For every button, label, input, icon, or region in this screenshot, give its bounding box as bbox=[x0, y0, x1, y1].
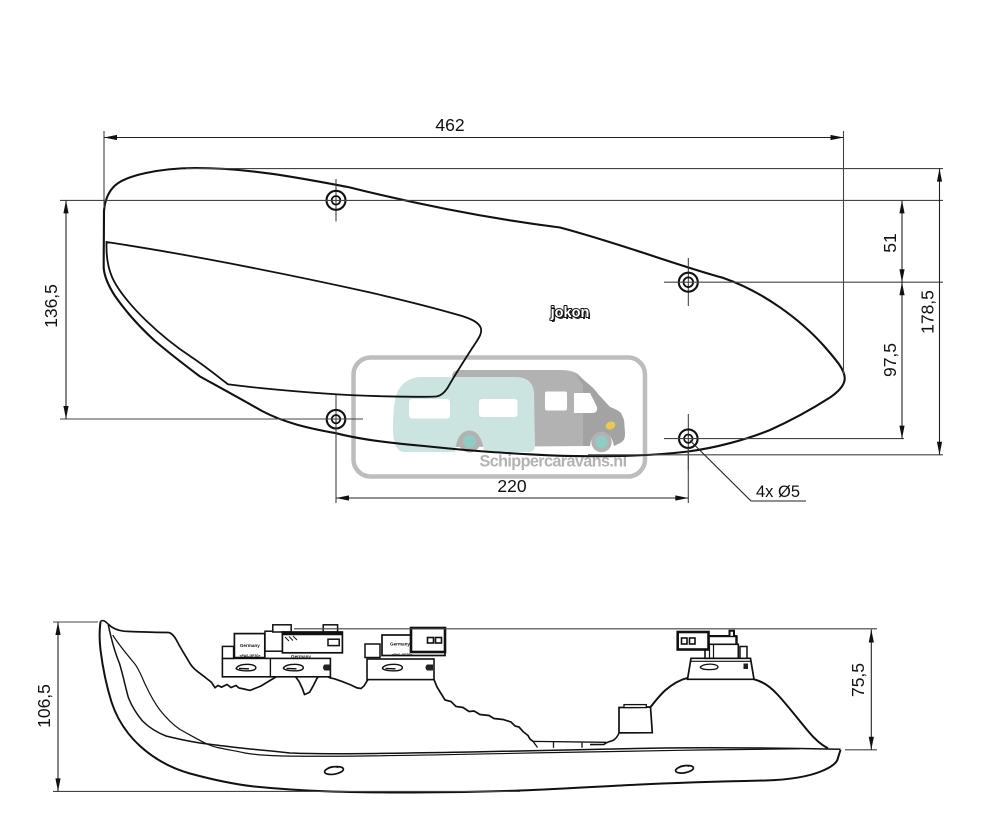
svg-text:Germany: Germany bbox=[291, 654, 311, 659]
svg-text:«PA6-GF30»: «PA6-GF30» bbox=[392, 653, 413, 657]
svg-text:«PA6-GF30»: «PA6-GF30» bbox=[240, 654, 261, 658]
svg-text:97,5: 97,5 bbox=[880, 343, 900, 377]
svg-text:462: 462 bbox=[435, 115, 464, 135]
svg-text:51: 51 bbox=[880, 233, 900, 252]
svg-text:178,5: 178,5 bbox=[918, 290, 938, 334]
svg-text:220: 220 bbox=[497, 476, 526, 496]
svg-text:jokon: jokon bbox=[550, 305, 590, 321]
svg-text:75,5: 75,5 bbox=[848, 663, 868, 697]
svg-text:136,5: 136,5 bbox=[41, 284, 61, 328]
svg-text:Germany: Germany bbox=[390, 641, 410, 646]
svg-text:Germany: Germany bbox=[240, 643, 260, 648]
svg-text:106,5: 106,5 bbox=[34, 684, 54, 728]
svg-text:4x Ø5: 4x Ø5 bbox=[756, 483, 800, 501]
